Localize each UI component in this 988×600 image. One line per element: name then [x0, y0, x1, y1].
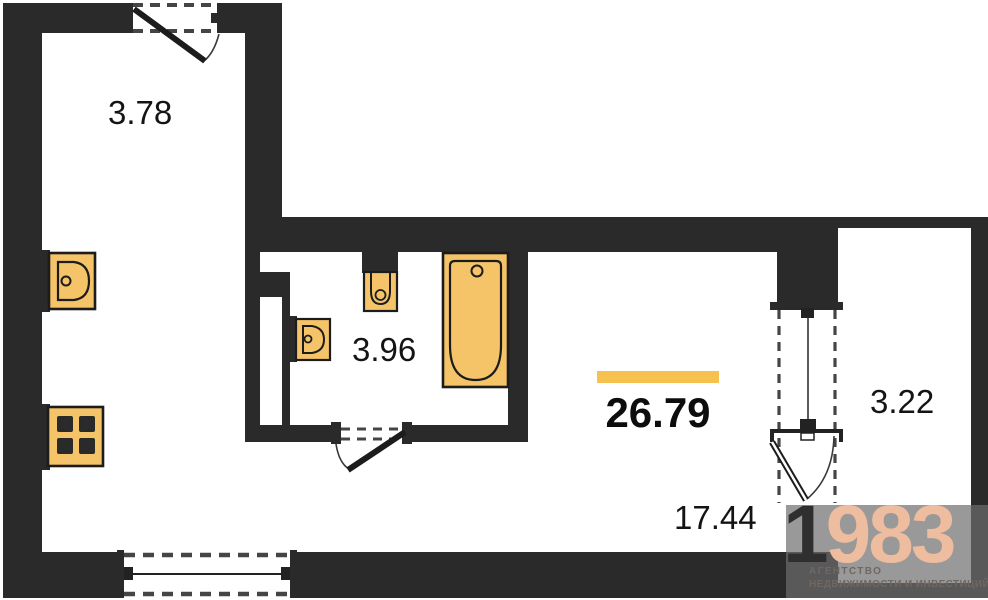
wall-bottom-left [3, 552, 117, 598]
entrance-door-leaf [134, 9, 205, 61]
wall-bath-right [508, 252, 528, 442]
floor-plan: 3.78 3.96 17.44 3.22 26.79 1983 АГЕНТСТВ… [0, 0, 988, 600]
kitchen-window [124, 555, 290, 594]
balcony-window-stop-top [801, 308, 814, 318]
wall-bottom-main [297, 552, 838, 598]
wall-bath-bottom-left [245, 425, 331, 442]
toilet-icon [362, 252, 398, 311]
total-area-label: 26.79 [588, 389, 728, 437]
watermark-agency-line2: НЕДВИЖИМОСТИ И ИНВЕСТИЦИЙ [809, 579, 988, 590]
kitchen-window-stop-right [281, 567, 290, 580]
kitchen-window-stop-left [124, 567, 133, 580]
bath-door-post-left [331, 422, 341, 444]
balcony-sill-cap-right [839, 429, 843, 442]
balcony-door-latch [801, 433, 814, 440]
stove-burner-1 [57, 416, 73, 432]
wall-shaft-stub [260, 272, 290, 297]
washbasin-icon [290, 316, 330, 362]
room-label-balcony: 3.22 [870, 383, 934, 421]
wall-balcony-top [838, 217, 988, 228]
wall-top-left [3, 3, 125, 33]
wall-hall-right [245, 33, 282, 252]
watermark-logo: 1983 [783, 494, 953, 576]
stove-body [48, 407, 103, 466]
total-area-accent-bar [597, 371, 719, 383]
stove-burner-4 [79, 438, 95, 454]
stove-burner-3 [57, 438, 73, 454]
wall-top-right [225, 3, 282, 33]
kitchen-sink-icon [42, 250, 95, 312]
wall-shaft-thin [282, 297, 290, 427]
stove-icon [42, 404, 103, 470]
stove-burner-2 [79, 416, 95, 432]
watermark-agency-line1: АГЕНТСТВО [809, 566, 882, 577]
entrance-door-arc [204, 34, 219, 61]
kitchen-window-post-right [290, 550, 297, 598]
bathtub-icon [443, 253, 508, 387]
room-label-bathroom: 3.96 [352, 331, 416, 369]
balcony-sill-cap-left [770, 429, 774, 442]
room-label-hall: 3.78 [108, 94, 172, 132]
wall-main-horizontal [282, 217, 777, 252]
bath-door-arc [336, 444, 349, 469]
bathroom-door [336, 429, 405, 470]
toilet-body [364, 272, 397, 311]
wall-left [3, 3, 42, 598]
entrance-door-post-left [125, 3, 133, 33]
wall-bath-left [245, 252, 260, 442]
entrance-door [133, 5, 219, 61]
entrance-door-stop [211, 13, 220, 23]
toilet-tank [362, 252, 398, 273]
kitchen-window-post-left [117, 550, 124, 598]
room-label-living: 17.44 [674, 499, 757, 537]
balcony-unit [770, 302, 843, 503]
wall-pillar-balcony [777, 217, 838, 303]
